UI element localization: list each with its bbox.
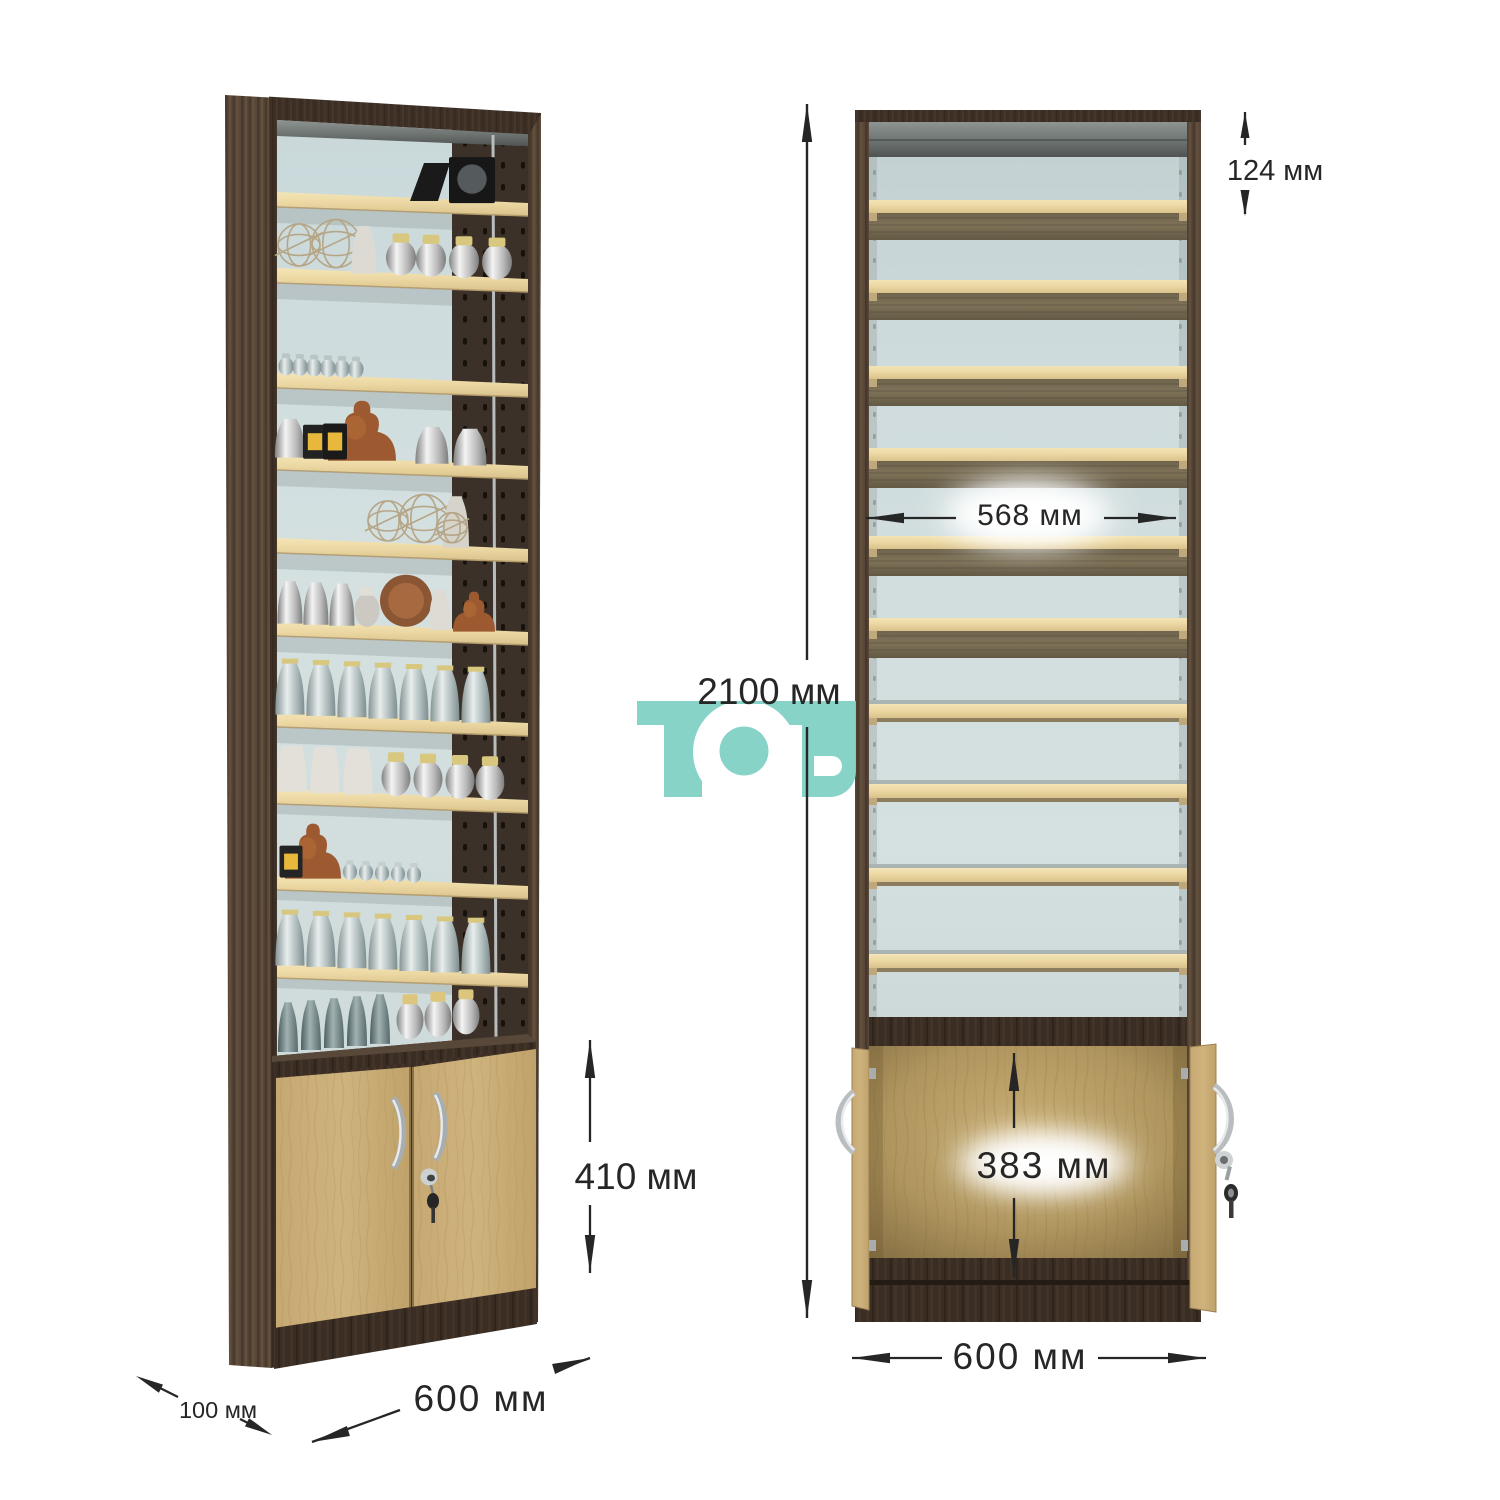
svg-text:100 мм: 100 мм	[179, 1397, 257, 1423]
svg-text:410 мм: 410 мм	[575, 1156, 698, 1197]
svg-text:2100 мм: 2100 мм	[697, 671, 840, 712]
svg-text:568 мм: 568 мм	[977, 499, 1083, 532]
svg-text:124 мм: 124 мм	[1227, 155, 1323, 187]
svg-text:600 мм: 600 мм	[414, 1378, 549, 1419]
svg-text:383 мм: 383 мм	[977, 1145, 1112, 1186]
svg-text:600 мм: 600 мм	[953, 1336, 1088, 1377]
